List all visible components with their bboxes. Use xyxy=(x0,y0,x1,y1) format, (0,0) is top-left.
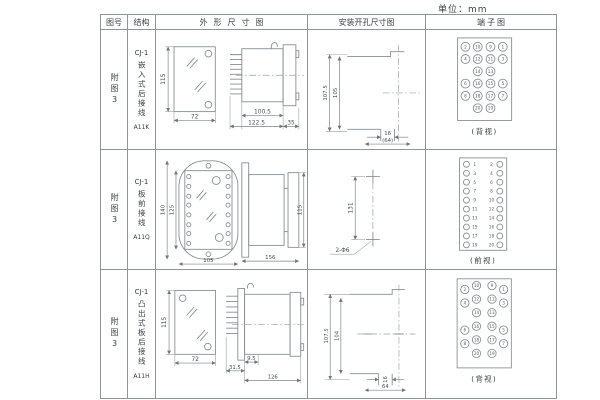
terminal-number: 15 xyxy=(489,324,495,329)
dim-label: (64) xyxy=(382,138,393,144)
mounting-drawing-a11q: 131 2-Φ6 xyxy=(309,153,425,267)
row1-outline-cell: 115 72 xyxy=(156,30,308,150)
terminal-diagram-rear-a11k: 2 10 9 1 4 12 11 3 14 13 6 16 15 5 8 18 xyxy=(427,33,555,147)
header-fig-no: 图号 xyxy=(101,15,128,30)
terminal-dots xyxy=(186,174,229,245)
dim-label: 126 xyxy=(267,375,278,381)
terminal-number: 9 xyxy=(473,197,476,202)
side-view: 9.5 31.5 126 xyxy=(226,283,303,383)
dim-label: 125 xyxy=(169,204,175,214)
terminal-diagram-front-a11q: 1 3 5 7 9 11 13 15 17 19 2 4 6 8 10 12 1 xyxy=(427,153,555,267)
row3-terminal-cell: 2 10 9 1 4 12 11 3 14 13 6 16 15 5 8 18 xyxy=(426,270,556,398)
terminal-number: 5 xyxy=(501,81,504,86)
dim-label: 140 xyxy=(160,204,166,215)
front-view: 115 72 xyxy=(162,290,215,366)
side-view: 156 115 xyxy=(241,162,305,260)
terminal-number: 16 xyxy=(475,81,481,86)
mounting-drawing-a11k: 107.5 105 16 (64) xyxy=(309,33,425,147)
terminal-number: 17 xyxy=(488,93,494,98)
terminal-number: 17 xyxy=(489,337,495,342)
side-view: 100.5 122.5 35 xyxy=(230,42,304,129)
terminal-number: 12 xyxy=(474,297,480,302)
terminal-number: 16 xyxy=(474,324,480,329)
terminal-number: 20 xyxy=(475,105,481,110)
terminal-number: 10 xyxy=(489,197,495,202)
terminal-number: 14 xyxy=(475,68,481,73)
row2-terminal-cell: 1 3 5 7 9 11 13 15 17 19 2 4 6 8 10 12 1 xyxy=(426,150,556,270)
terminal-number: 3 xyxy=(502,301,505,306)
terminal-number: 12 xyxy=(489,206,495,211)
row3-structure-cell: CJ-1 凸出式板后接线 A11H xyxy=(128,270,156,398)
spec-table: 图号 结构 外形尺寸图 安装开孔尺寸图 端子图 附图3 CJ-1 嵌入式后接线 … xyxy=(100,14,557,399)
dim-label: 107.5 xyxy=(323,85,329,100)
terminal-number: 18 xyxy=(475,93,481,98)
header-outline: 外形尺寸图 xyxy=(156,15,308,30)
terminal-grid: 2 10 9 1 4 12 11 3 14 13 6 16 15 5 8 18 xyxy=(461,281,508,357)
terminal-number: 4 xyxy=(464,56,467,61)
terminal-number: 6 xyxy=(490,179,493,184)
dim-label: 104 xyxy=(334,330,340,341)
dim-label: 64 xyxy=(382,384,389,390)
terminal-number: 10 xyxy=(475,44,481,49)
terminal-grid: 1 3 5 7 9 11 13 15 17 19 2 4 6 8 10 12 1 xyxy=(463,161,502,247)
view-caption: (背视) xyxy=(471,374,497,383)
outline-drawing-a11k: 115 72 xyxy=(157,33,307,147)
row1-mounting-cell: 107.5 105 16 (64) xyxy=(308,30,426,150)
header-mounting: 安装开孔尺寸图 xyxy=(308,15,426,30)
terminal-number: 2 xyxy=(464,44,467,49)
row2-outline-cell: 140 125 105 156 115 xyxy=(156,150,308,270)
row2-fig-no-cell: 附图3 xyxy=(101,150,128,270)
terminal-number: 13 xyxy=(489,310,495,315)
terminal-number: 17 xyxy=(472,233,478,238)
header-terminal: 端子图 xyxy=(426,15,556,30)
row1-terminal-cell: 2 10 9 1 4 12 11 3 14 13 6 16 15 5 8 18 xyxy=(426,30,556,150)
terminal-number: 19 xyxy=(472,242,478,247)
code-label: A11K xyxy=(134,124,150,131)
fig-no-label: 附图3 xyxy=(110,193,118,227)
dim-label: 115 xyxy=(297,204,303,214)
terminal-number: 5 xyxy=(502,328,505,333)
terminal-number: 14 xyxy=(489,215,495,220)
terminal-number: 20 xyxy=(489,242,495,247)
dim-label: 156 xyxy=(265,255,276,261)
code-label: A11H xyxy=(133,373,149,380)
terminal-number: 7 xyxy=(501,93,504,98)
terminal-number: 18 xyxy=(489,233,495,238)
terminal-number: 6 xyxy=(464,328,467,333)
outline-drawing-a11h: 115 72 9.5 xyxy=(157,273,307,395)
terminal-number: 8 xyxy=(464,341,467,346)
terminal-number: 18 xyxy=(474,337,480,342)
row1-fig-no-cell: 附图3 xyxy=(101,30,128,150)
terminal-number: 8 xyxy=(490,188,493,193)
row3-fig-no-cell: 附图3 xyxy=(101,270,128,398)
structure-label: 嵌入式后接线 xyxy=(138,61,146,118)
terminal-number: 15 xyxy=(472,224,478,229)
terminal-number: 13 xyxy=(472,215,478,220)
terminal-number: 8 xyxy=(464,93,467,98)
terminal-number: 12 xyxy=(475,56,481,61)
front-view: 140 125 105 xyxy=(160,160,237,263)
dim-label: 16 xyxy=(384,131,391,137)
terminal-number: 1 xyxy=(473,161,476,166)
terminal-number: 7 xyxy=(473,188,476,193)
terminal-number: 10 xyxy=(474,283,480,288)
model-label: CJ-1 xyxy=(135,178,149,186)
structure-label: 凸出式板后接线 xyxy=(138,300,146,367)
terminal-number: 9 xyxy=(491,283,494,288)
terminal-number: 3 xyxy=(473,170,476,175)
terminal-grid: 2 10 9 1 4 12 11 3 14 13 6 16 15 5 8 18 xyxy=(461,42,507,112)
terminal-number: 9 xyxy=(489,44,492,49)
terminal-number: 19 xyxy=(488,105,494,110)
dim-label: 115 xyxy=(161,73,167,84)
spec-sheet-page: 单位：mm 图号 结构 外形尺寸图 安装开孔尺寸图 端子图 附图3 CJ-1 嵌… xyxy=(0,0,600,400)
view-caption: (前视) xyxy=(470,256,496,265)
row1-structure-cell: CJ-1 嵌入式后接线 A11K xyxy=(128,30,156,150)
dim-label: 9.5 xyxy=(247,356,255,362)
terminal-number: 2 xyxy=(464,287,467,292)
terminal-number: 13 xyxy=(488,68,494,73)
dim-label: 16 xyxy=(382,376,388,383)
drill-holes xyxy=(366,169,380,246)
dim-label: 107.5 xyxy=(323,328,329,343)
terminal-number: 5 xyxy=(473,179,476,184)
dim-label: 100.5 xyxy=(254,109,271,115)
dim-label: 72 xyxy=(190,114,198,120)
fig-no-label: 附图3 xyxy=(110,317,118,351)
mounting-drawing-a11h: 107.5 104 16 64 xyxy=(309,273,425,395)
dim-label: 105 xyxy=(203,258,213,264)
hole-spec-label: 2-Φ6 xyxy=(335,248,349,254)
terminal-number: 3 xyxy=(501,56,504,61)
terminal-number: 16 xyxy=(489,224,495,229)
terminal-number: 19 xyxy=(489,351,495,356)
code-label: A11Q xyxy=(133,234,149,241)
fig-no-label: 附图3 xyxy=(110,73,118,107)
terminal-number: 1 xyxy=(502,287,505,292)
terminal-number: 7 xyxy=(502,341,505,346)
row2-structure-cell: CJ-1 板前接线 A11Q xyxy=(128,150,156,270)
structure-label: 板前接线 xyxy=(138,190,146,228)
dim-label: 72 xyxy=(191,357,199,363)
row3-outline-cell: 115 72 9.5 xyxy=(156,270,308,398)
dim-label: 131 xyxy=(348,202,354,213)
dim-label: 35 xyxy=(287,120,295,126)
model-label: CJ-1 xyxy=(135,49,149,57)
terminal-number: 11 xyxy=(489,297,495,302)
terminal-diagram-rear-a11h: 2 10 9 1 4 12 11 3 14 13 6 16 15 5 8 18 xyxy=(427,273,555,395)
terminal-number: 15 xyxy=(488,81,494,86)
dim-label: 115 xyxy=(162,317,168,328)
dim-label: 31.5 xyxy=(228,365,240,371)
row2-mounting-cell: 131 2-Φ6 xyxy=(308,150,426,270)
terminal-number: 6 xyxy=(464,81,467,86)
view-caption: (背视) xyxy=(471,127,497,136)
dim-label: 105 xyxy=(333,87,339,97)
model-label: CJ-1 xyxy=(135,288,149,296)
terminal-number: 14 xyxy=(474,310,480,315)
terminal-number: 4 xyxy=(490,170,493,175)
terminal-number: 20 xyxy=(474,351,480,356)
terminal-number: 4 xyxy=(464,301,467,306)
terminal-number: 11 xyxy=(472,206,478,211)
front-view: 115 72 xyxy=(161,46,215,123)
dim-label: 122.5 xyxy=(248,120,265,126)
row3-mounting-cell: 107.5 104 16 64 xyxy=(308,270,426,398)
terminal-number: 2 xyxy=(490,161,493,166)
outline-drawing-a11q: 140 125 105 156 115 xyxy=(157,153,307,267)
header-structure: 结构 xyxy=(128,15,156,30)
terminal-number: 11 xyxy=(488,56,494,61)
terminal-number: 1 xyxy=(501,44,504,49)
